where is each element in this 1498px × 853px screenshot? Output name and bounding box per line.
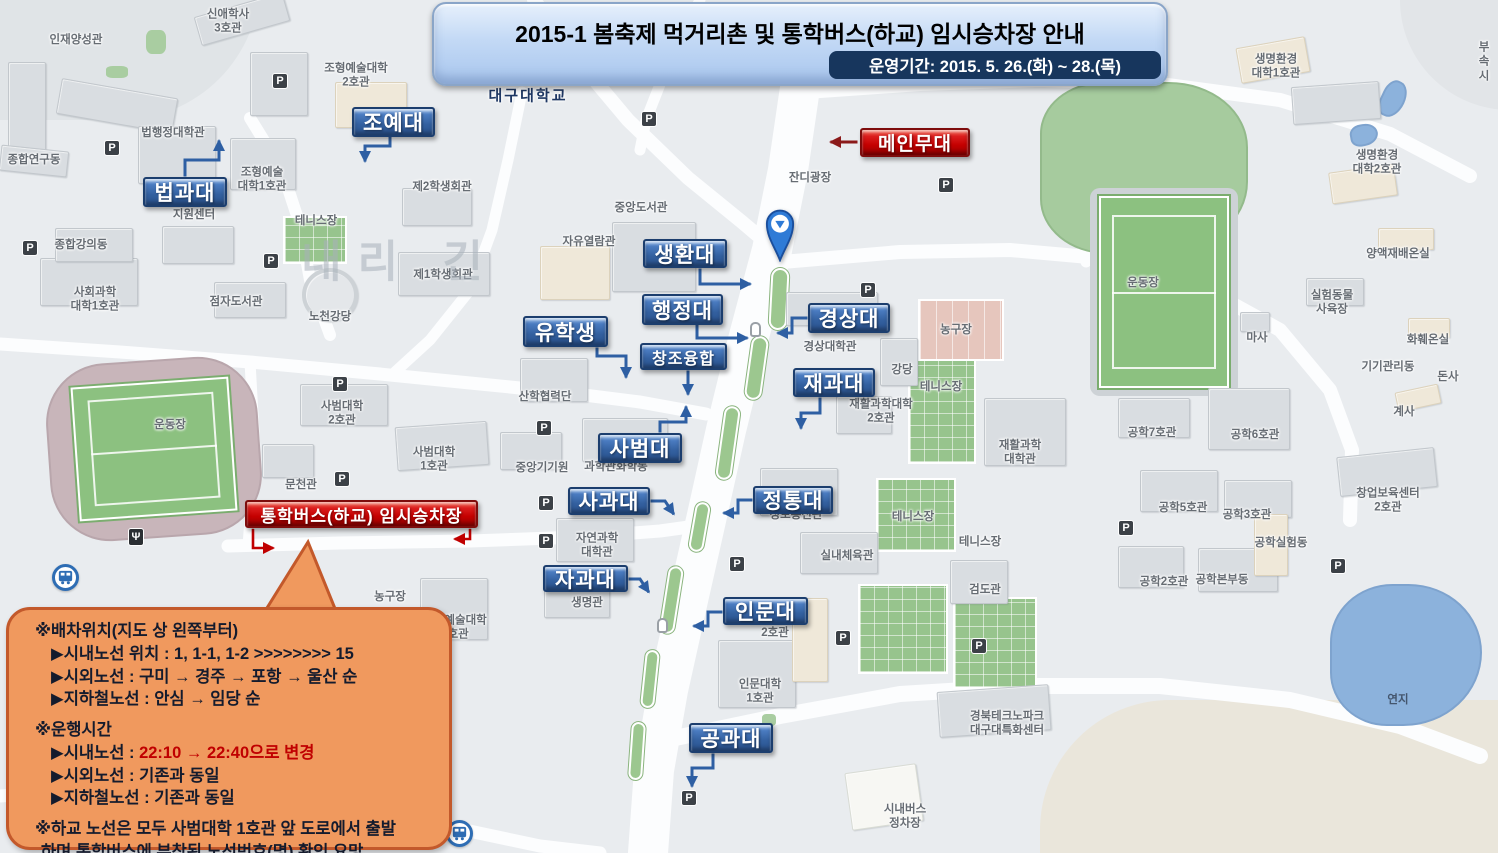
callout-main-stage: 메인무대 (860, 128, 970, 157)
notice-bubble: ※배차위치(지도 상 왼쪽부터)▶시내노선 위치 : 1, 1-1, 1-2 >… (6, 607, 452, 850)
callout-jagwadae: 자과대 (543, 565, 628, 592)
notice-line: ▶시외노선 : 기존과 동일 (23, 765, 439, 788)
notice-line: ▶시내노선 : 22:10 → 22:40으로 변경 (23, 742, 439, 765)
callout-sabeomdae: 사범대 (598, 433, 682, 463)
poster-title: 2015-1 봄축제 먹거리촌 및 통학버스(하교) 임시승차장 안내 (434, 15, 1166, 49)
callout-inmundae: 인문대 (723, 597, 808, 625)
operation-period: 운영기간: 2015. 5. 26.(화) ~ 28.(목) (829, 51, 1161, 79)
callout-haengjeongdae: 행정대 (642, 294, 723, 325)
callout-changjoyunghap: 창조융합 (640, 343, 727, 370)
notice-line: ※운행시간 (23, 719, 439, 742)
notice-line: ※배차위치(지도 상 왼쪽부터) (23, 620, 439, 643)
notice-line: 하며 통학버스에 부착된 노선번호(명) 확인 요망 (23, 841, 439, 853)
callout-joyedae: 조예대 (352, 107, 435, 137)
callout-beopgwadae: 법과대 (143, 177, 227, 207)
campus-map-poster: 인재양성관신애학사 3호관조형예술대학 2호관대구대학교제2학생회관중앙도서관자… (0, 0, 1498, 853)
callout-yuhaksaeng: 유학생 (523, 316, 608, 347)
notice-line: ▶시외노선 : 구미 → 경주 → 포항 → 울산 순 (23, 666, 439, 689)
callout-sagwadae: 사과대 (568, 487, 650, 515)
callout-jaegwadae: 재과대 (793, 368, 875, 397)
callout-gyeongsangdae: 경상대 (808, 303, 890, 333)
callout-saenghwandae: 생환대 (643, 239, 727, 268)
title-banner: 2015-1 봄축제 먹거리촌 및 통학버스(하교) 임시승차장 안내 운영기간… (432, 2, 1168, 86)
notice-text: ※배차위치(지도 상 왼쪽부터)▶시내노선 위치 : 1, 1-1, 1-2 >… (23, 620, 439, 853)
callout-gonggwadae: 공과대 (689, 723, 773, 753)
callout-jeongtongdae: 정통대 (753, 486, 833, 514)
notice-highlight: 22:10 → 22:40으로 변경 (139, 744, 314, 762)
notice-line: ▶시내노선 위치 : 1, 1-1, 1-2 >>>>>>>> 15 (23, 643, 439, 666)
notice-line: ▶지하철노선 : 안심 → 임당 순 (23, 688, 439, 711)
notice-line: ※하교 노선은 모두 사범대학 1호관 앞 도로에서 출발 (23, 818, 439, 841)
callout-bus-stop: 통학버스(하교) 임시승차장 (245, 500, 478, 528)
notice-line: ▶지하철노선 : 기존과 동일 (23, 787, 439, 810)
